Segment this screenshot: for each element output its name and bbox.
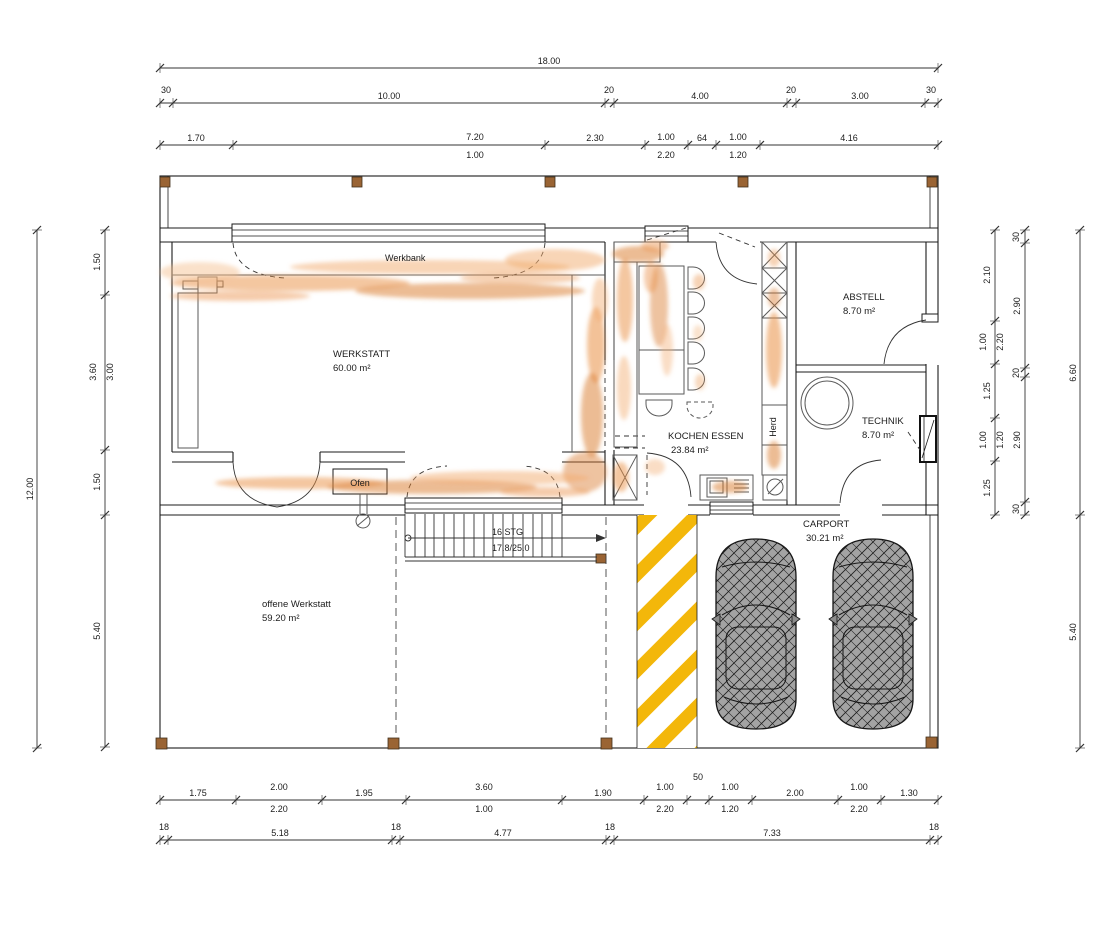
dim-label: 2.10 (982, 266, 992, 284)
dim-label: 1.20 (995, 431, 1005, 449)
kitchen-south-window (710, 502, 753, 514)
car-left (712, 539, 800, 729)
dim-label: 1.25 (982, 382, 992, 400)
abstell-door-gap (937, 320, 939, 365)
room-area-abstell: 8.70 m² (843, 306, 875, 317)
dim-label: 1.50 (92, 473, 102, 491)
dim-label: 3.60 (88, 363, 98, 381)
label-herd: Herd (768, 417, 778, 437)
dim-label: 1.90 (594, 788, 612, 798)
room-label-abstell: ABSTELL (843, 292, 885, 303)
dim-label: 1.00 (466, 150, 484, 160)
dim-label: 2.20 (850, 804, 868, 814)
dim-label: 64 (697, 133, 707, 143)
dim-label: 2.90 (1012, 297, 1022, 315)
dim-label: 2.90 (1012, 431, 1022, 449)
label-stairs-ratio: 17.8/25.0 (492, 543, 530, 553)
dim-label: 1.00 (978, 431, 988, 449)
room-label-carport: CARPORT (803, 519, 849, 530)
room-area-kochen-essen: 23.84 m² (671, 445, 709, 456)
dim-label: 1.50 (92, 253, 102, 271)
dim-label: 12.00 (25, 478, 35, 501)
room-area-carport: 30.21 m² (806, 533, 844, 544)
dim-label: 2.30 (586, 133, 604, 143)
room-label-werkstatt: WERKSTATT (333, 349, 390, 360)
dim-label: 2.20 (656, 804, 674, 814)
dim-label: 1.00 (850, 782, 868, 792)
room-label-kochen-essen: KOCHEN ESSEN (668, 431, 744, 442)
dim-label: 30 (161, 85, 171, 95)
dim-label: 2.00 (270, 782, 288, 792)
dim-label: 2.20 (995, 333, 1005, 351)
room-label-offene-werkstatt: offene Werkstatt (262, 599, 331, 610)
dim-label: 5.40 (1068, 623, 1078, 641)
dim-label: 1.00 (656, 782, 674, 792)
dim-label: 18 (929, 822, 939, 832)
dim-label: 5.18 (271, 828, 289, 838)
dim-label: 18 (391, 822, 401, 832)
dim-label: 2.20 (657, 150, 675, 160)
dim-label: 1.20 (721, 804, 739, 814)
dim-label: 2.20 (270, 804, 288, 814)
floor-plan: 18.00 30 10.00 20 4.00 20 3.00 30 1.70 7… (0, 0, 1095, 926)
car-right (829, 539, 917, 729)
dim-label: 20 (1011, 368, 1021, 378)
dim-label: 1.30 (900, 788, 918, 798)
dim-label: 3.00 (105, 363, 115, 381)
dim-label: 1.20 (729, 150, 747, 160)
room-area-offene-werkstatt: 59.20 m² (262, 613, 300, 624)
dim-label: 7.20 (466, 132, 484, 142)
dim-label: 1.00 (978, 333, 988, 351)
dim-label: 7.33 (763, 828, 781, 838)
dim-label: 50 (693, 772, 703, 782)
dim-label: 3.60 (475, 782, 493, 792)
dim-label: 30 (1011, 504, 1021, 514)
dim-label: 20 (604, 85, 614, 95)
dim-label: 20 (786, 85, 796, 95)
dim-label: 1.00 (657, 132, 675, 142)
label-werkbank: Werkbank (385, 253, 426, 263)
floor-plan-canvas: 18.00 30 10.00 20 4.00 20 3.00 30 1.70 7… (0, 0, 1095, 926)
room-area-technik: 8.70 m² (862, 430, 894, 441)
dim-label: 1.00 (729, 132, 747, 142)
dim-label: 1.25 (982, 479, 992, 497)
room-area-werkstatt: 60.00 m² (333, 363, 371, 374)
dim-label: 3.00 (851, 91, 869, 101)
dim-label: 4.00 (691, 91, 709, 101)
dim-label: 1.95 (355, 788, 373, 798)
dim-label: 4.16 (840, 133, 858, 143)
dim-label: 10.00 (378, 91, 401, 101)
dim-label: 2.00 (786, 788, 804, 798)
dim-label: 1.70 (187, 133, 205, 143)
label-stairs-count: 16 STG (492, 527, 523, 537)
dim-label: 5.40 (92, 622, 102, 640)
dim-label: 1.75 (189, 788, 207, 798)
dim-label: 1.00 (721, 782, 739, 792)
dim-label: 18 (159, 822, 169, 832)
dim-label: 1.00 (475, 804, 493, 814)
dim-label: 18.00 (538, 56, 561, 66)
walkway-stripes (637, 515, 697, 748)
kitchen-north-window (645, 226, 688, 242)
dim-label: 6.60 (1068, 364, 1078, 382)
dim-label: 30 (926, 85, 936, 95)
dim-label: 4.77 (494, 828, 512, 838)
room-label-technik: TECHNIK (862, 416, 904, 427)
dim-label: 30 (1011, 232, 1021, 242)
dim-label: 18 (605, 822, 615, 832)
label-ofen: Ofen (350, 478, 370, 488)
